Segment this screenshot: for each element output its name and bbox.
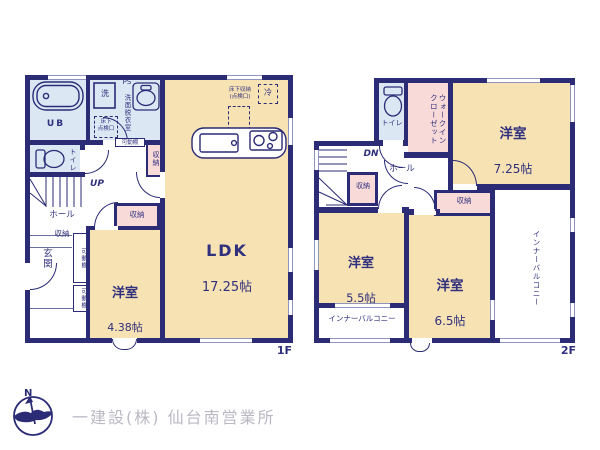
- label-underfloor-wash-1f: 床下 点検口: [95, 119, 117, 137]
- bedroom1-2f-name: 洋室: [478, 126, 548, 142]
- window: [570, 218, 575, 232]
- ldk-size: 17.25帖: [182, 280, 272, 296]
- window: [570, 303, 575, 317]
- window: [227, 75, 262, 80]
- label-hall-2f: ホール: [384, 164, 420, 175]
- bedroom1-2f-size: 7.25帖: [478, 162, 548, 177]
- label-entrance-1f: 玄関: [37, 241, 51, 275]
- label-toilet-2f: トイレ: [379, 119, 405, 129]
- wall: [25, 338, 293, 343]
- label-washroom-1f: 洗面脱衣室: [118, 85, 130, 141]
- shelf-box-entrance-2: 可動棚: [73, 285, 87, 312]
- door-arc-bedroom3-2f: [414, 187, 436, 211]
- bedroom-1f-size: 4.38帖: [92, 321, 158, 334]
- label-bedroom-1f: 洋室 4.38帖: [92, 266, 158, 302]
- door-arc-bedroom2-2f: [378, 185, 402, 209]
- bedroom2-2f-size: 5.5帖: [324, 291, 398, 305]
- window: [487, 78, 540, 83]
- label-bedroom1-2f: 洋室 7.25帖: [478, 106, 548, 146]
- label-fridge-1f: 冷: [260, 88, 276, 100]
- bedroom3-2f-size: 6.5帖: [414, 314, 486, 329]
- window: [570, 85, 575, 122]
- wall: [374, 78, 379, 145]
- door-arc-ldk-1f: [136, 172, 160, 198]
- label-balcony-right-2f: インナーバルコニー: [525, 220, 540, 316]
- label-washer-1f: 洗: [96, 89, 114, 100]
- label-storage-hall-2f: 収納: [349, 182, 377, 193]
- door-arc-toilet-1f: [85, 150, 109, 174]
- label-hall-1f: ホール: [44, 210, 80, 221]
- label-storage-entrance-1f: 収納: [48, 229, 76, 239]
- label-stairs-up-1f: UP: [86, 179, 108, 191]
- label-closet-bedroom3-2f: 収納: [449, 196, 479, 208]
- fixtures-overlay: N: [0, 0, 600, 450]
- window: [330, 338, 390, 343]
- company-name: 一建設(株) 仙台南営業所: [72, 404, 372, 428]
- window: [490, 300, 495, 320]
- window: [314, 240, 319, 270]
- wall: [404, 207, 409, 343]
- window: [288, 118, 293, 145]
- label-closet-bedroom-1f: 収納: [120, 210, 154, 222]
- bedroom2-2f-name: 洋室: [324, 256, 398, 272]
- underfloor-storage-kitchen: [228, 106, 250, 130]
- bedroom-1f-name: 洋室: [92, 286, 158, 302]
- window: [48, 75, 86, 80]
- wall: [404, 83, 408, 146]
- ldk-name: LDK: [182, 241, 272, 261]
- stairs-down-icon: [319, 150, 347, 205]
- label-storage-hall-1f: 収納: [148, 144, 160, 174]
- door-arc-bedroom-1f: [94, 202, 118, 228]
- label-bedroom3-2f: 洋室 6.5帖: [414, 258, 486, 298]
- label-stairs-down-2f: DN: [360, 149, 382, 161]
- window: [314, 150, 319, 170]
- window: [500, 338, 560, 343]
- window: [288, 248, 293, 272]
- label-balcony-left-2f: インナーバルコニー: [320, 314, 404, 325]
- stairs-up-icon: [30, 177, 81, 207]
- wall: [404, 152, 453, 158]
- window: [288, 300, 293, 315]
- bedroom3-2f-name: 洋室: [414, 278, 486, 294]
- label-bath-1f: UB: [40, 119, 72, 131]
- shelf-box-entrance-1: 可動棚: [73, 233, 87, 283]
- label-wic-2f: ウォークイン クローゼット: [410, 88, 446, 150]
- compass-icon: N: [13, 388, 53, 435]
- room-bath-1f: [30, 80, 86, 142]
- label-bedroom2-2f: 洋室 5.5帖: [324, 236, 398, 276]
- label-floor-2f: 2F: [546, 344, 576, 357]
- wall: [25, 75, 30, 343]
- door-gap: [160, 172, 165, 198]
- window: [200, 338, 252, 343]
- label-underfloor-kitchen-1f: 床下収納 (点検口): [218, 87, 262, 105]
- label-floor-1f: 1F: [262, 344, 292, 357]
- floorplan-canvas: 可動棚 可動棚 可動棚: [0, 0, 600, 450]
- wall: [314, 141, 379, 146]
- label-toilet-1f: トイレ: [65, 146, 77, 174]
- wall: [86, 80, 90, 140]
- room-toilet-2f: [379, 83, 404, 140]
- compass-n-label: N: [24, 388, 32, 399]
- label-ldk-1f: LDK 17.25帖: [182, 221, 272, 265]
- wall: [160, 75, 165, 343]
